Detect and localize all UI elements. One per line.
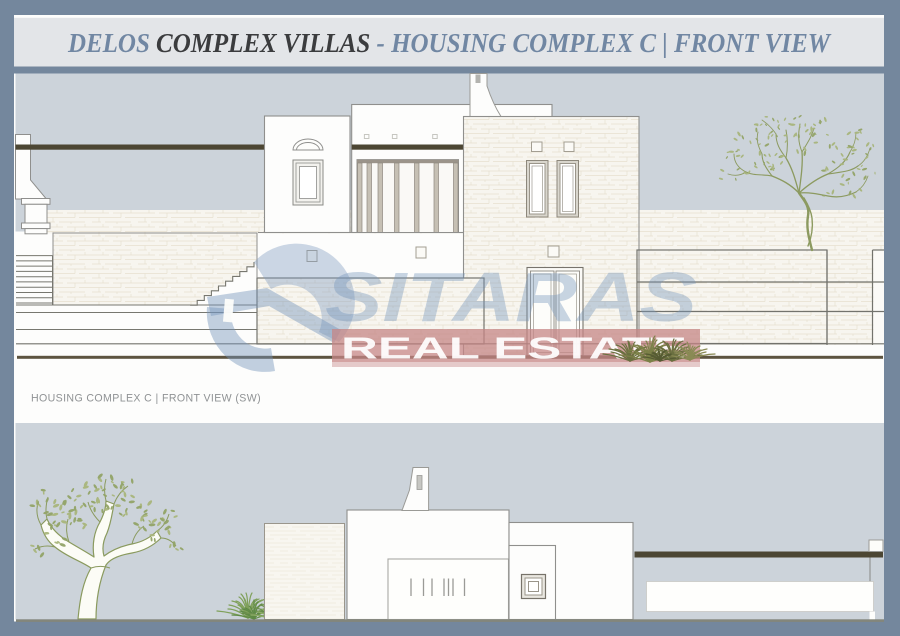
svg-text:SITARAS: SITARAS xyxy=(325,258,697,336)
svg-text:REAL ESTATE: REAL ESTATE xyxy=(341,331,687,366)
svg-text:HOUSING COMPLEX C | FRONT VI: HOUSING COMPLEX C | FRONT VIEW (SW) xyxy=(31,393,261,405)
svg-text:DELOS COMPLEX VILLAS - HOUSING: DELOS COMPLEX VILLAS - HOUSING COMPLEX C… xyxy=(67,28,832,58)
